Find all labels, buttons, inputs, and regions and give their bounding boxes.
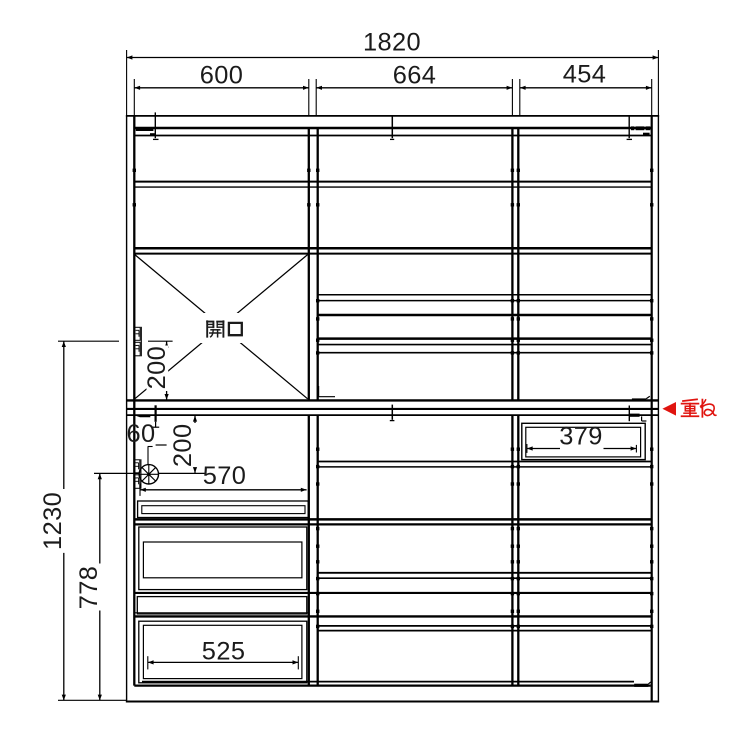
svg-text:1820: 1820 — [363, 29, 421, 57]
svg-text:600: 600 — [200, 62, 244, 90]
svg-text:778: 778 — [75, 566, 103, 610]
svg-text:200: 200 — [169, 424, 197, 468]
svg-text:570: 570 — [203, 462, 247, 490]
svg-text:1230: 1230 — [39, 492, 67, 550]
svg-text:664: 664 — [393, 62, 437, 90]
svg-text:60: 60 — [126, 420, 155, 448]
svg-text:525: 525 — [202, 638, 246, 666]
svg-text:200: 200 — [143, 346, 171, 390]
svg-text:454: 454 — [563, 61, 607, 89]
svg-text:379: 379 — [559, 422, 603, 450]
